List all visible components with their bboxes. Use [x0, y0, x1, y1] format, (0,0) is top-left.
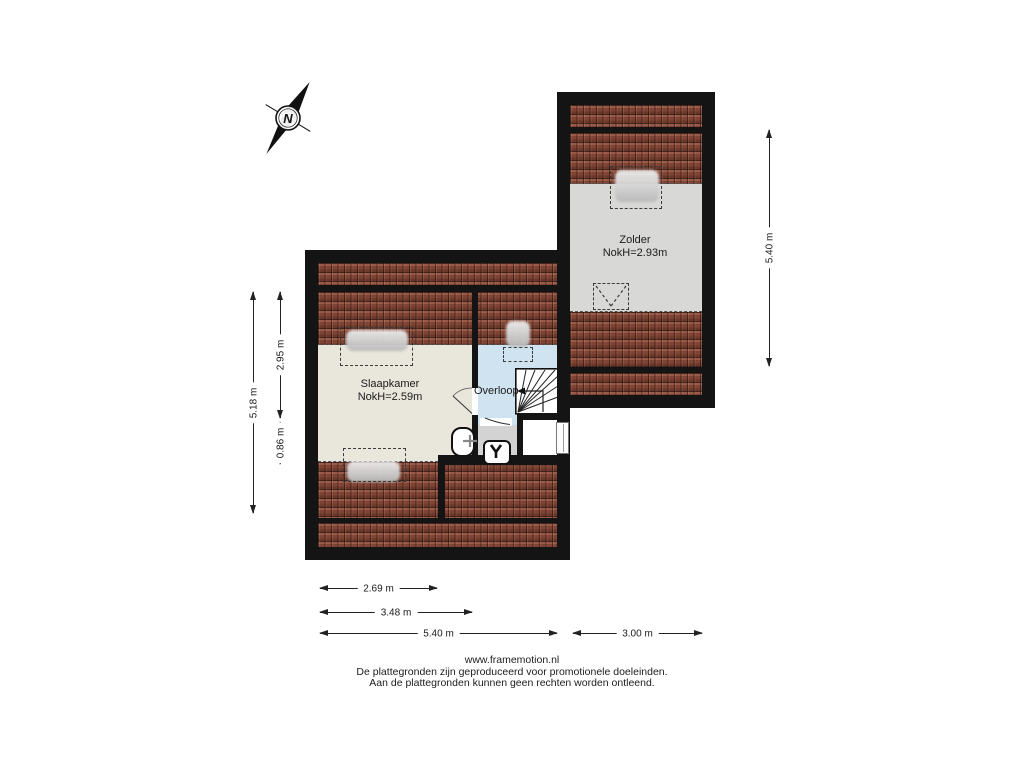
dimension-left-upper: 2.95 m: [280, 292, 281, 418]
dim-arrow: [277, 410, 283, 419]
wall-segment: [557, 395, 715, 408]
dim-arrow: [549, 630, 558, 636]
wall-segment: [570, 367, 702, 373]
faucet-icon: [462, 435, 478, 447]
wall-segment: [318, 285, 557, 292]
skylight-frame: [503, 347, 533, 362]
wall-segment: [305, 250, 570, 263]
compass-north-icon: N: [250, 70, 326, 166]
dimension-label: 2.95 m: [276, 335, 287, 376]
room-ridge-height: NokH=2.93m: [575, 247, 695, 260]
dim-arrow: [694, 630, 703, 636]
roof-tile-strip: [318, 263, 557, 285]
footer-disclaimer-1: De plattegronden zijn geproduceerd voor …: [0, 667, 1024, 678]
roof-tile-strip: [570, 105, 702, 127]
skylight-frame: [343, 448, 406, 482]
dimension-bottom-3: 5.40 m: [320, 633, 557, 634]
dim-arrow: [319, 630, 328, 636]
room-name: Slaapkamer: [315, 378, 465, 391]
room-ridge-height: NokH=2.59m: [315, 391, 465, 404]
skylight-window: [506, 321, 530, 347]
slaapkamer-label: Slaapkamer NokH=2.59m: [315, 378, 465, 404]
dim-arrow: [319, 585, 328, 591]
skylight-frame: [340, 327, 413, 366]
dimension-label: 5.18 m: [249, 382, 260, 423]
footer-website: www.framemotion.nl: [0, 655, 1024, 666]
dim-arrow: [277, 291, 283, 300]
dim-arrow: [250, 505, 256, 514]
dimension-label: 3.00 m: [616, 629, 659, 640]
dim-arrow: [766, 358, 772, 367]
dimension-bottom-2: 3.48 m: [320, 612, 472, 613]
room-name: Overloop: [474, 385, 520, 398]
wall-segment: [305, 250, 318, 560]
dimension-label: 5.40 m: [765, 228, 776, 269]
room-name: Zolder: [575, 234, 695, 247]
dim-arrow: [766, 129, 772, 138]
roof-tile-area: [570, 312, 702, 367]
wall-segment: [472, 285, 478, 388]
wall-segment: [702, 92, 715, 408]
roof-tile-strip: [318, 523, 557, 547]
roof-tile-strip: [570, 373, 702, 395]
dim-arrow: [319, 609, 328, 615]
dimension-label: 2.69 m: [357, 584, 400, 595]
dim-arrow: [464, 609, 473, 615]
overloop-label: Overloop: [474, 385, 520, 398]
roof-edge-line: [570, 311, 702, 312]
toilet-glyph: [487, 443, 505, 460]
wall-segment: [570, 127, 702, 133]
dimension-label: 5.40 m: [417, 629, 460, 640]
zolder-label: Zolder NokH=2.93m: [575, 234, 695, 260]
dim-arrow: [572, 630, 581, 636]
door-leaf: [485, 418, 510, 425]
roof-hatch-icon: [593, 283, 629, 310]
compass-letter: N: [283, 111, 293, 126]
dimension-bottom-4: 3.00 m: [573, 633, 702, 634]
dimension-right-total: 5.40 m: [769, 130, 770, 366]
dimension-label: 0.86 m: [276, 423, 287, 464]
wall-segment: [438, 455, 445, 520]
dimension-bottom-1: 2.69 m: [320, 588, 437, 589]
dimension-left-total: 5.18 m: [253, 292, 254, 513]
dim-arrow: [429, 585, 438, 591]
wall-segment: [305, 547, 570, 560]
wall-segment: [557, 92, 715, 105]
dimension-left-lower: 0.86 m: [280, 422, 281, 464]
floorplan-page: { "compass": { "letter": "N" }, "rooms":…: [0, 0, 1024, 768]
footer: www.framemotion.nl De plattegronden zijn…: [0, 655, 1024, 690]
footer-disclaimer-2: Aan de plattegronden kunnen geen rechten…: [0, 678, 1024, 689]
dimension-label: 3.48 m: [375, 608, 418, 619]
dim-arrow: [250, 291, 256, 300]
skylight-frame: [610, 166, 662, 209]
